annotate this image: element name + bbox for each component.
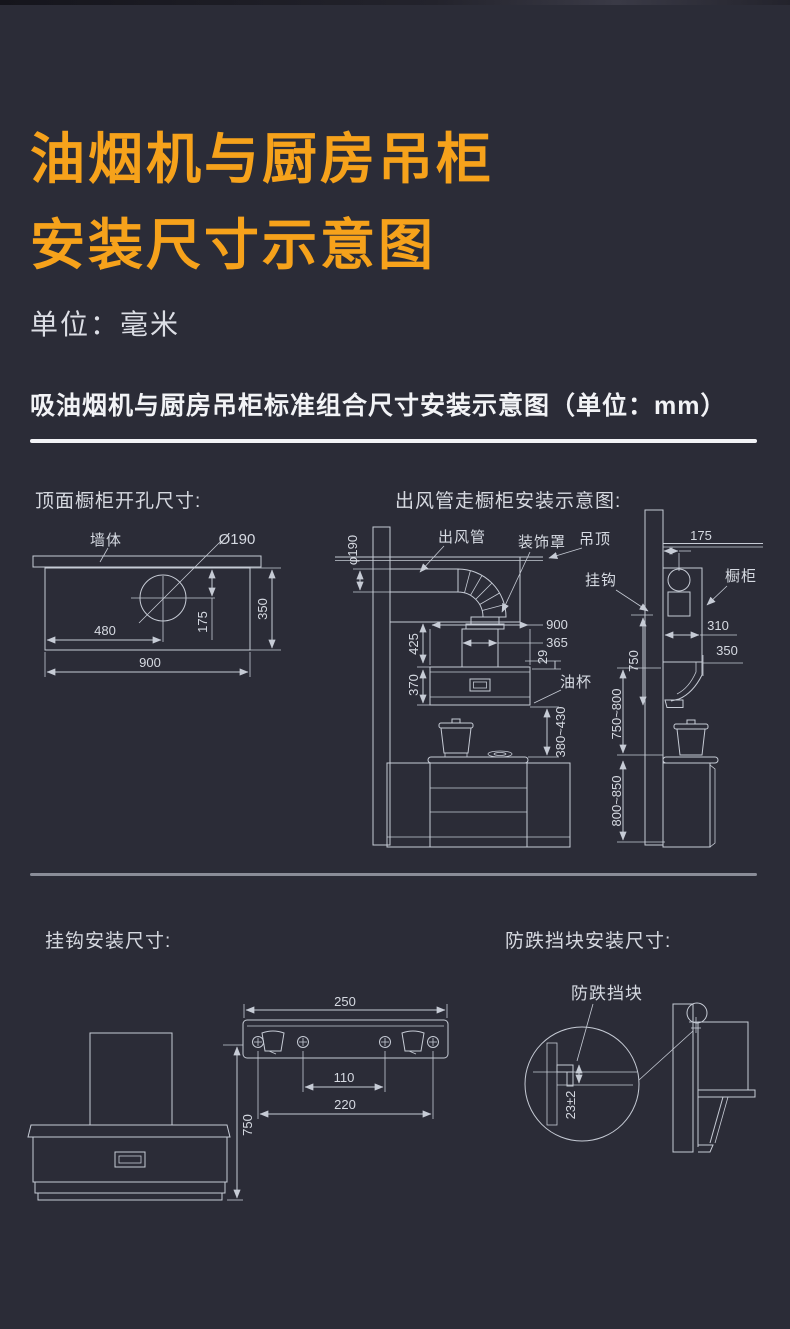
duct-diagram: 吊顶 φ190 出风管 装饰罩: [335, 505, 765, 863]
dim-phi190: φ190: [345, 535, 390, 592]
dim-29: 29: [525, 650, 561, 669]
cover-label: 装饰罩: [518, 534, 566, 551]
svg-text:900: 900: [139, 655, 161, 670]
dim-250: 250: [244, 994, 447, 1018]
wall-leader-line: [100, 548, 108, 562]
installation-diagram-page: 油烟机与厨房吊柜 安装尺寸示意图 单位：毫米 吸油烟机与厨房吊柜标准组合尺寸安装…: [0, 0, 790, 1329]
hood-side-profile: [665, 662, 702, 708]
svg-text:310: 310: [707, 618, 729, 633]
page-title-line1: 油烟机与厨房吊柜: [30, 116, 494, 202]
wall-strip: [33, 548, 261, 567]
bracket-screws: [253, 1037, 439, 1048]
svg-text:750: 750: [240, 1114, 255, 1136]
hole-diameter-label: Ø190: [219, 531, 256, 548]
svg-text:750~800: 750~800: [609, 689, 624, 740]
svg-text:900: 900: [546, 617, 568, 632]
dim-23-2: 23±2: [563, 1065, 579, 1119]
hole-leader-line: [139, 541, 221, 623]
opening-diagram-heading: 顶面橱柜开孔尺寸:: [35, 486, 201, 513]
decorative-cover: [462, 629, 498, 667]
svg-text:175: 175: [195, 611, 210, 633]
svg-text:29: 29: [535, 650, 550, 664]
hook-label: 挂钩: [585, 572, 617, 589]
svg-text:425: 425: [406, 633, 421, 655]
duct-run: [390, 569, 506, 629]
ceiling-line-front: [335, 557, 543, 561]
block-diagram: 防跌挡块 23±2: [495, 975, 790, 1217]
opening-diagram: 墙体 Ø190 175 350 480 900: [25, 520, 315, 710]
svg-text:800~850: 800~850: [609, 776, 624, 827]
page-title: 油烟机与厨房吊柜 安装尺寸示意图: [30, 116, 494, 288]
oil-cup-label: 油杯: [560, 674, 592, 691]
svg-text:370: 370: [406, 674, 421, 696]
dim-350: 350: [250, 568, 281, 650]
svg-text:750: 750: [626, 650, 641, 672]
svg-text:380~430: 380~430: [553, 707, 568, 758]
hook-diagram-heading: 挂钩安装尺寸:: [45, 926, 171, 953]
cooktop-front: [428, 719, 528, 763]
hook-diagram: 750 250 110: [25, 995, 470, 1247]
dim-175: 175: [664, 528, 712, 571]
dim-350-side: 350: [703, 643, 743, 676]
dim-310: 310: [665, 618, 737, 635]
hood-front-view: [28, 1033, 230, 1200]
svg-text:350: 350: [716, 643, 738, 658]
dim-380-430: 380~430: [528, 707, 568, 758]
dim-110: 110: [303, 1051, 385, 1092]
section-heading: 吸油烟机与厨房吊柜标准组合尺寸安装示意图（单位：mm）: [30, 386, 726, 422]
duct-label: 出风管: [438, 529, 486, 546]
dim-800-850: 800~850: [609, 761, 665, 842]
svg-text:110: 110: [334, 1070, 355, 1085]
cabinet-label: 橱柜: [725, 568, 757, 585]
cabinet-leader: [707, 586, 727, 605]
dim-365: 365: [463, 635, 568, 650]
unit-note: 单位：毫米: [30, 303, 180, 343]
cooktop-side: [663, 720, 718, 763]
duct-leader: [420, 546, 444, 572]
svg-text:480: 480: [94, 623, 116, 638]
dim-220: 220: [258, 1051, 433, 1119]
block-diagram-heading: 防跌挡块安装尺寸:: [505, 926, 671, 953]
hood-side-view: [639, 1003, 755, 1152]
block-leader: [577, 1004, 593, 1061]
svg-text:350: 350: [255, 598, 270, 620]
svg-text:φ190: φ190: [345, 535, 360, 565]
dim-750-800: 750~800: [609, 668, 663, 755]
cabinet-top-outline: [45, 568, 250, 650]
hood-front: [430, 667, 530, 705]
dim-750: 750: [626, 615, 653, 705]
cabinet-side: [663, 568, 702, 662]
svg-text:175: 175: [690, 528, 712, 543]
dim-750: 750: [223, 1045, 255, 1200]
svg-text:23±2: 23±2: [563, 1091, 578, 1120]
cover-leader: [502, 552, 530, 612]
dim-900: 900: [45, 652, 250, 677]
svg-text:250: 250: [334, 994, 356, 1009]
duct-cabinet-box: [390, 557, 520, 622]
page-title-line2: 安装尺寸示意图: [30, 202, 494, 288]
wall-label: 墙体: [90, 532, 122, 549]
dim-480: 480: [47, 623, 161, 640]
lower-cabinet-front: [387, 763, 570, 847]
lower-cabinet-side: [663, 763, 715, 847]
dim-175: 175: [195, 570, 212, 640]
side-wall-column: [645, 510, 663, 845]
svg-text:220: 220: [334, 1097, 356, 1112]
dim-425: 425: [406, 624, 430, 667]
ceiling-label: 吊顶: [579, 531, 611, 548]
ceiling-line-side: [663, 544, 763, 548]
hook-leader: [616, 590, 648, 611]
block-label: 防跌挡块: [571, 984, 643, 1003]
detail-leader: [639, 1031, 693, 1080]
svg-text:365: 365: [546, 635, 568, 650]
heading-divider: [30, 439, 757, 443]
mounting-bracket: [243, 1020, 448, 1058]
oil-cup-leader: [534, 690, 561, 703]
top-accent-bar: [0, 0, 790, 5]
dim-370: 370: [406, 670, 430, 705]
section-divider: [30, 873, 757, 876]
block-location-marker: [687, 1003, 707, 1023]
